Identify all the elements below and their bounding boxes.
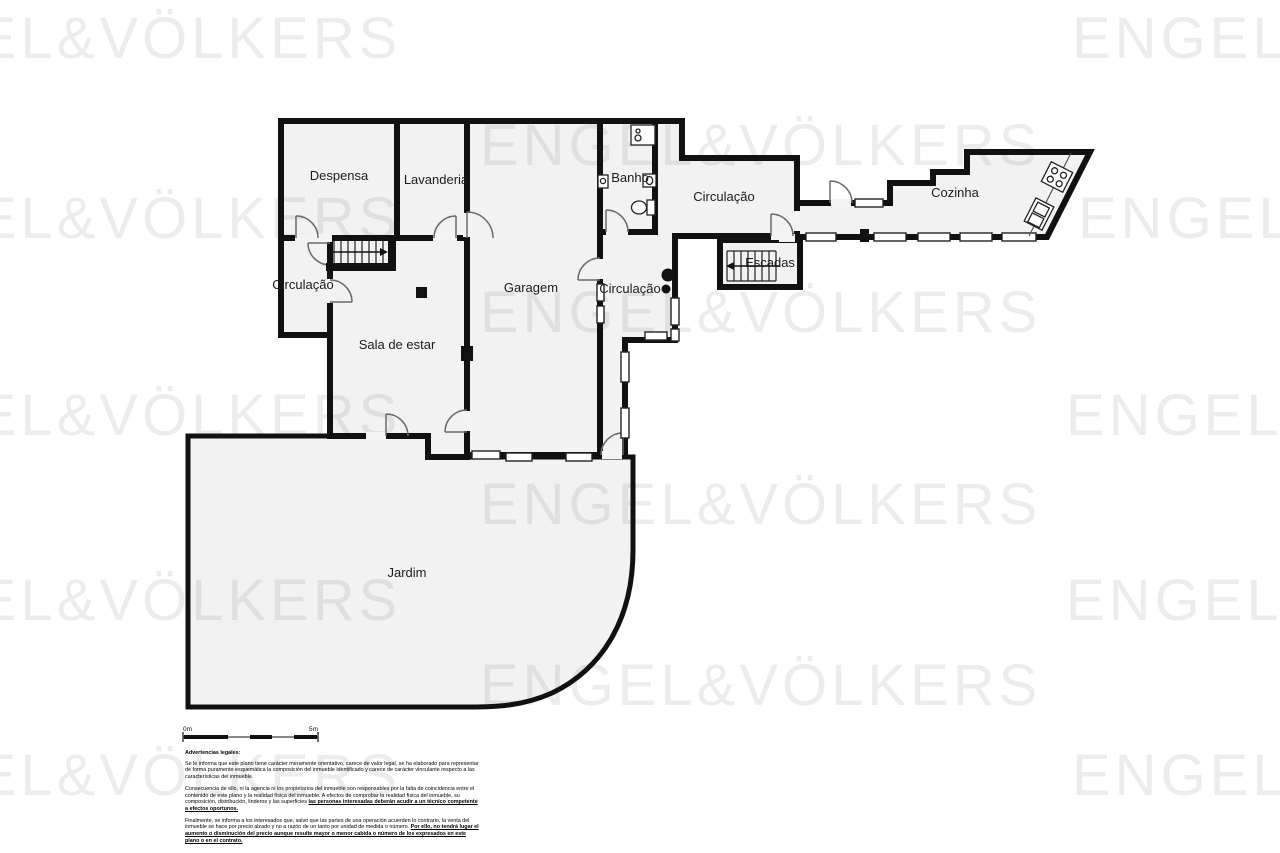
room-label-jardim: Jardim [387,565,426,580]
room-label-garagem: Garagem [504,280,558,295]
legal-paragraph-3: Finalmente, se informa a los interesados… [185,818,481,845]
column-dot [662,285,671,294]
pillar [416,287,427,298]
room-label-circulacao-top: Circulação [693,189,754,204]
scale-bar: 0m 5m [183,726,318,742]
legal-disclaimer: Advertencias legales: Se le informa que … [185,750,481,849]
toilet-icon [647,200,655,215]
scale-start-label: 0m [183,726,192,733]
legal-title: Advertencias legales: [185,750,481,757]
room-label-escadas: Escadas [745,255,795,270]
room-label-banho: Banho [611,170,649,185]
floor-plan: Despensa Lavanderia Banho Circulação Coz… [0,0,1280,853]
scale-end-label: 5m [309,726,318,733]
legal-paragraph-2: Consecuencia de ello, ni la agencia ni l… [185,786,481,813]
room-label-despensa: Despensa [310,168,369,183]
legal-paragraph-1: Se le informa que este plano tiene carác… [185,761,481,781]
room-label-circulacao-mid: Circulação [599,281,660,296]
pillar [461,346,473,361]
room-label-cozinha: Cozinha [931,185,979,200]
room-label-lavanderia: Lavanderia [404,172,469,187]
room-label-sala-de-estar: Sala de estar [359,337,436,352]
column-dot [662,269,675,282]
room-label-circulacao-left: Circulação [272,277,333,292]
